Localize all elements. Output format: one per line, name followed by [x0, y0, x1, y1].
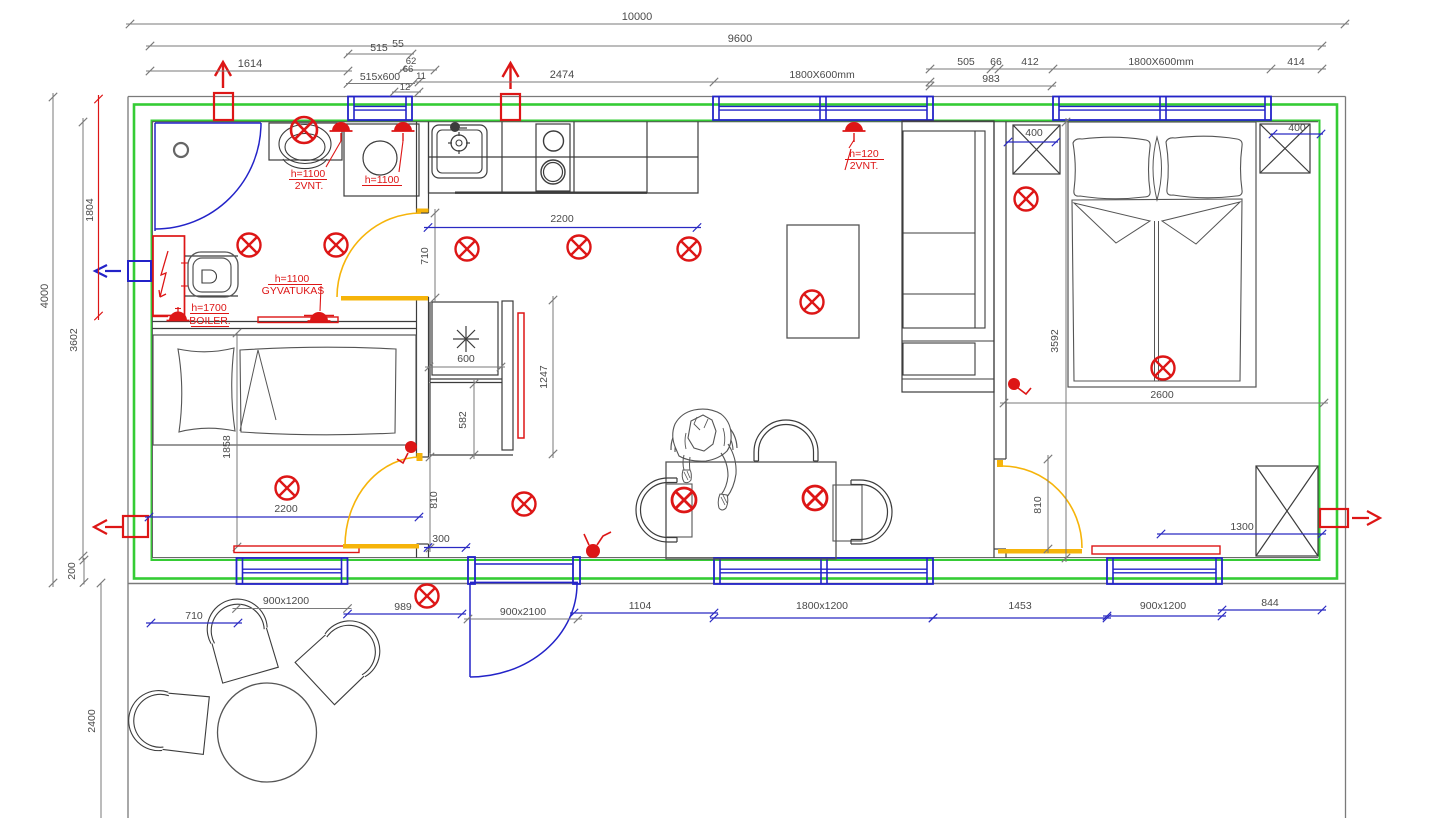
svg-text:66: 66	[403, 64, 414, 75]
svg-text:1804: 1804	[84, 198, 96, 222]
svg-text:2200: 2200	[274, 503, 298, 515]
svg-text:2200: 2200	[550, 213, 574, 225]
svg-text:515: 515	[370, 42, 388, 54]
svg-text:900x2100: 900x2100	[500, 606, 546, 618]
svg-text:1247: 1247	[538, 365, 550, 389]
svg-text:414: 414	[1287, 56, 1305, 68]
svg-text:h=1100: h=1100	[365, 174, 400, 186]
svg-text:1800X600mm: 1800X600mm	[789, 69, 855, 81]
svg-text:300: 300	[432, 533, 450, 545]
svg-text:412: 412	[1021, 56, 1039, 68]
svg-text:515x600: 515x600	[360, 71, 400, 83]
svg-text:11: 11	[416, 71, 426, 82]
svg-text:66: 66	[990, 56, 1002, 68]
svg-text:55: 55	[392, 38, 404, 50]
svg-text:400: 400	[1288, 122, 1306, 134]
svg-text:1300: 1300	[1230, 521, 1254, 533]
svg-text:BOILER.: BOILER.	[189, 315, 230, 327]
svg-text:710: 710	[419, 247, 431, 265]
svg-text:810: 810	[428, 491, 440, 509]
svg-text:GYVATUKAS: GYVATUKAS	[262, 285, 325, 297]
svg-text:2VNT.: 2VNT.	[295, 180, 324, 192]
svg-text:2400: 2400	[86, 709, 98, 733]
svg-text:h=1100: h=1100	[275, 273, 310, 285]
svg-text:400: 400	[1025, 127, 1043, 139]
svg-text:200: 200	[66, 562, 78, 580]
svg-text:1858: 1858	[221, 435, 233, 459]
svg-text:10000: 10000	[622, 11, 653, 23]
svg-text:582: 582	[457, 411, 469, 429]
svg-text:1800x1200: 1800x1200	[796, 600, 848, 612]
svg-text:h=1100: h=1100	[291, 168, 326, 180]
svg-text:4000: 4000	[39, 284, 51, 308]
svg-text:2474: 2474	[550, 69, 574, 81]
svg-text:2600: 2600	[1150, 389, 1174, 401]
svg-text:h=1700: h=1700	[191, 302, 226, 314]
svg-text:1800X600mm: 1800X600mm	[1128, 56, 1194, 68]
svg-text:2VNT.: 2VNT.	[850, 160, 879, 172]
svg-text:900x1200: 900x1200	[263, 595, 309, 607]
svg-text:710: 710	[185, 610, 203, 622]
svg-text:1104: 1104	[629, 600, 652, 612]
svg-text:3592: 3592	[1049, 329, 1061, 353]
svg-text:9600: 9600	[728, 33, 752, 45]
svg-text:3602: 3602	[68, 328, 80, 352]
svg-text:505: 505	[957, 56, 975, 68]
svg-text:810: 810	[1032, 496, 1044, 514]
svg-text:12: 12	[400, 82, 411, 93]
svg-text:1614: 1614	[238, 58, 262, 70]
svg-text:844: 844	[1261, 597, 1279, 609]
svg-text:1453: 1453	[1008, 600, 1032, 612]
svg-text:600: 600	[457, 353, 475, 365]
svg-text:989: 989	[394, 601, 412, 613]
svg-text:h=120: h=120	[849, 148, 879, 160]
svg-text:900x1200: 900x1200	[1140, 600, 1186, 612]
svg-text:983: 983	[982, 73, 1000, 85]
